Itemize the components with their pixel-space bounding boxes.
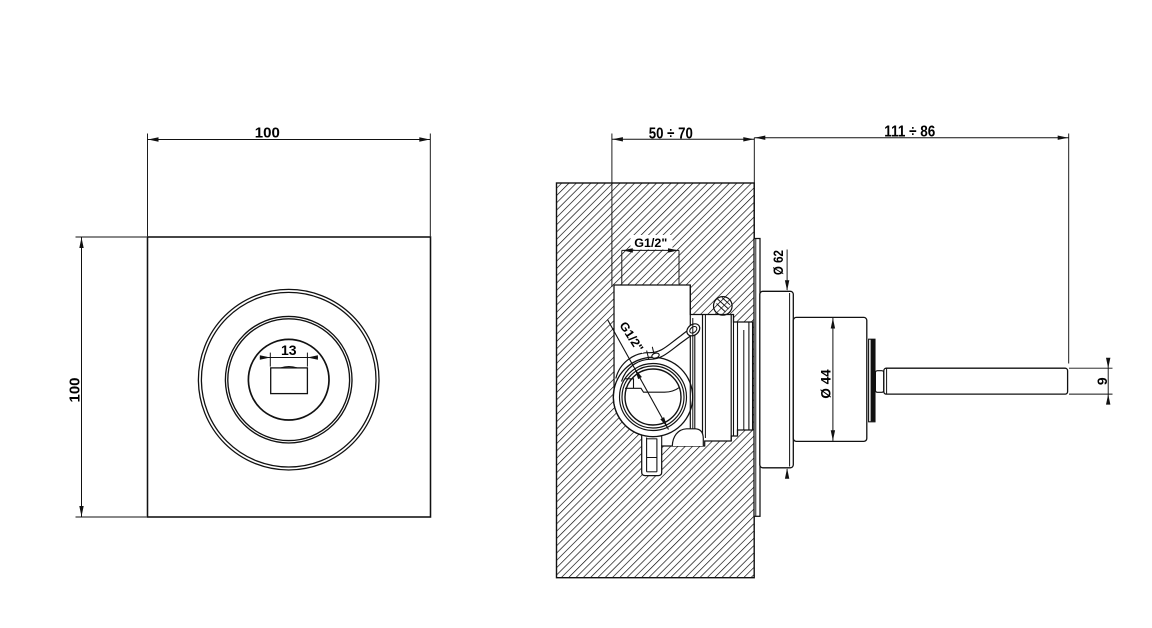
svg-text:G1/2": G1/2" [634, 236, 667, 250]
svg-text:50 ÷ 70: 50 ÷ 70 [649, 125, 693, 142]
svg-text:9: 9 [1094, 377, 1110, 385]
svg-text:Ø 44: Ø 44 [818, 369, 833, 399]
svg-text:111 ÷ 86: 111 ÷ 86 [884, 124, 935, 141]
svg-text:100: 100 [255, 124, 280, 141]
svg-text:100: 100 [67, 377, 84, 402]
svg-text:13: 13 [281, 342, 297, 358]
svg-text:Ø 62: Ø 62 [771, 250, 786, 275]
